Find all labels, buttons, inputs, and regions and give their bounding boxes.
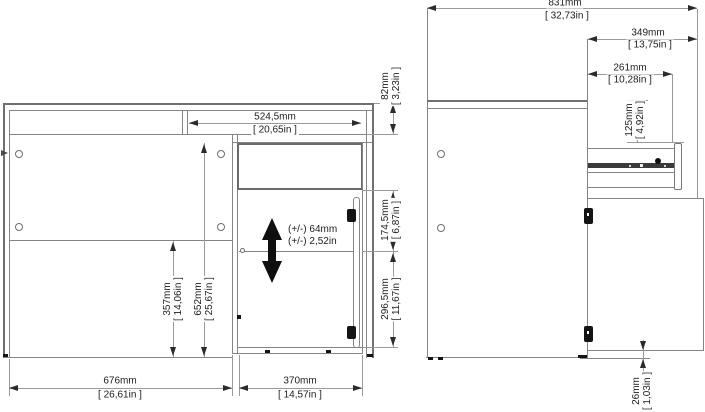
front-desktop-underside bbox=[9, 110, 372, 111]
dim-arrow-icon bbox=[688, 5, 697, 11]
slide-detail-dot bbox=[664, 165, 666, 167]
dim-arrow-icon bbox=[390, 253, 396, 262]
dim-arrow-icon bbox=[201, 144, 207, 153]
dim-label-kneespace-height: 357mm [ 14,06in ] bbox=[162, 276, 184, 322]
door-hinge bbox=[347, 209, 356, 222]
front-pedestal-left-wall-outer bbox=[232, 134, 233, 353]
door-hinge bbox=[347, 326, 356, 339]
dim-label-slide-travel-in: [ 10,28in ] bbox=[606, 75, 654, 86]
dim-arrow-icon bbox=[9, 385, 18, 391]
shelf-adjust-arrow-icon bbox=[262, 218, 282, 240]
dim-label-kneespace-height-in: [ 14,06in ] bbox=[173, 277, 184, 321]
side-drawer-front-panel bbox=[674, 143, 682, 190]
dim-arrow-icon bbox=[223, 385, 232, 391]
dim-label-drawer-width-in: [ 20,65in ] bbox=[251, 125, 299, 136]
side-drawer-top-line bbox=[588, 148, 675, 149]
screw-hole bbox=[217, 150, 225, 158]
side-desktop-underside bbox=[427, 108, 587, 109]
dim-arrow-icon bbox=[390, 241, 396, 250]
screw-hole bbox=[217, 223, 225, 231]
dim-label-total-depth-mm: 831mm bbox=[546, 0, 583, 9]
dim-label-cabinet-width-in: [ 14,57in ] bbox=[276, 390, 324, 401]
shelf-adjust-label-in: (+/-) 2,52in bbox=[288, 236, 337, 247]
side-door-front-face bbox=[703, 198, 704, 350]
slide-stop-knob bbox=[655, 158, 661, 164]
dim-label-kneespace-width-in: [ 26,61in ] bbox=[96, 390, 144, 401]
dim-arrow-icon bbox=[640, 341, 646, 350]
front-pedestal-right-wall bbox=[362, 143, 363, 353]
dim-label-interior-height-in: [ 25,67in ] bbox=[204, 277, 215, 321]
front-right-panel-outer bbox=[372, 103, 374, 358]
front-drawer-front bbox=[237, 143, 363, 190]
dim-label-kneespace-height-mm: 357mm bbox=[162, 277, 173, 321]
slide-detail-dot bbox=[640, 164, 643, 167]
dim-arrow-icon bbox=[390, 337, 396, 346]
side-panel-bottom-line bbox=[426, 357, 588, 358]
foot-glide bbox=[3, 354, 8, 357]
front-door-bottom-line bbox=[237, 347, 363, 348]
dim-arrow-icon bbox=[663, 71, 672, 77]
dim-label-door-lower-in: [ 11,67in ] bbox=[391, 277, 402, 320]
foot-glide bbox=[578, 355, 587, 358]
dim-label-drawer-top-offset: 125mm [ 4,92in ] bbox=[624, 100, 646, 140]
dim-arrow-icon bbox=[390, 124, 396, 133]
edge-reference-arrow-icon bbox=[1, 150, 8, 156]
dim-arrow-icon bbox=[588, 71, 597, 77]
screw-hole bbox=[15, 223, 23, 231]
side-desktop-edge bbox=[427, 100, 587, 102]
dim-label-door-lower-mm: 296,5mm bbox=[380, 277, 391, 320]
side-drawer-bottom-line bbox=[588, 187, 675, 188]
foot-glide bbox=[367, 354, 373, 357]
front-desktop-edge bbox=[3, 103, 374, 105]
dim-label-drawer-extension-mm: 349mm bbox=[629, 28, 666, 39]
dim-label-door-upper-in: [ 6,87in ] bbox=[391, 199, 402, 241]
dim-label-cabinet-width-mm: 370mm bbox=[281, 376, 318, 387]
front-shelf-line bbox=[239, 251, 353, 252]
front-kneespace-bottom-line bbox=[3, 357, 233, 358]
dim-label-interior-height-mm: 652mm bbox=[193, 277, 204, 321]
hinge-pin-dot bbox=[587, 213, 589, 216]
side-slide-lower-line bbox=[588, 172, 675, 173]
dim-label-door-lower: 296,5mm [ 11,67in ] bbox=[380, 276, 402, 321]
dim-label-top-height-mm: 82mm bbox=[380, 67, 391, 105]
door-hinge bbox=[584, 208, 593, 224]
dim-label-interior-height: 652mm [ 25,67in ] bbox=[193, 276, 215, 322]
foot-glide bbox=[428, 357, 433, 360]
front-pedestal-bottom-line bbox=[232, 353, 363, 354]
foot-glide bbox=[326, 350, 331, 353]
dim-label-door-upper: 174,5mm [ 6,87in ] bbox=[380, 198, 402, 242]
dim-arrow-icon bbox=[588, 36, 597, 42]
front-backpanel-bottom-line bbox=[9, 240, 233, 241]
front-apron-divider-b bbox=[187, 111, 188, 134]
dim-arrow-icon bbox=[352, 120, 361, 126]
dim-ext-line bbox=[363, 347, 398, 348]
dim-arrow-icon bbox=[201, 347, 207, 356]
dim-arrow-icon bbox=[353, 385, 362, 391]
dim-arrow-icon bbox=[239, 385, 248, 391]
dim-label-top-height: 82mm [ 3,23in ] bbox=[380, 66, 402, 106]
dim-label-floor-clearance-mm: 26mm bbox=[631, 372, 642, 410]
drawer-slide-rail bbox=[588, 163, 675, 168]
front-apron-divider-a bbox=[182, 111, 183, 134]
shelf-adjust-label-mm: (+/-) 64mm bbox=[288, 224, 337, 235]
dim-ext-line bbox=[672, 74, 673, 143]
side-door-bottom-line bbox=[587, 350, 704, 351]
side-door-top-line bbox=[588, 198, 703, 199]
dim-ext-line bbox=[232, 355, 233, 396]
dim-arrow-icon bbox=[189, 120, 198, 126]
dim-arrow-icon bbox=[688, 36, 697, 42]
dim-line-interior-height bbox=[204, 143, 205, 357]
front-left-panel-outer bbox=[3, 104, 5, 358]
side-back-edge bbox=[427, 9, 428, 357]
slide-detail-dot bbox=[629, 165, 631, 167]
hinge-pin-dot bbox=[587, 331, 589, 334]
dim-label-drawer-width-mm: 524,5mm bbox=[252, 112, 298, 123]
dim-label-slide-travel-mm: 261mm bbox=[611, 63, 648, 74]
dim-ext-line bbox=[367, 134, 398, 135]
shelf-pin-hole bbox=[240, 248, 245, 253]
dim-label-drawer-top-offset-in: [ 4,92in ] bbox=[635, 101, 646, 139]
shelf-adjust-arrow-shaft bbox=[268, 239, 276, 263]
foot-glide bbox=[265, 350, 270, 353]
dim-arrow-icon bbox=[640, 359, 646, 368]
front-right-panel-inner bbox=[366, 110, 367, 358]
screw-hole bbox=[15, 150, 23, 158]
dim-label-total-depth-in: [ 32,73in ] bbox=[543, 11, 591, 22]
dim-label-kneespace-width-mm: 676mm bbox=[101, 376, 138, 387]
front-apron-bottom-line bbox=[9, 134, 367, 135]
dim-ext-line bbox=[362, 355, 363, 396]
door-hinge bbox=[584, 326, 593, 342]
shelf-adjust-arrow-icon bbox=[262, 261, 282, 283]
dim-label-door-upper-mm: 174,5mm bbox=[380, 199, 391, 241]
dim-arrow-icon bbox=[170, 347, 176, 356]
dim-arrow-icon bbox=[170, 242, 176, 251]
dim-label-drawer-extension-in: [ 13,75in ] bbox=[626, 40, 674, 51]
dim-arrow-icon bbox=[427, 5, 436, 11]
shelf-pin bbox=[237, 315, 241, 319]
screw-hole bbox=[437, 224, 445, 232]
dim-label-drawer-top-offset-mm: 125mm bbox=[624, 101, 635, 139]
front-left-panel-inner bbox=[9, 111, 10, 358]
screw-hole bbox=[437, 150, 445, 158]
dim-label-top-height-in: [ 3,23in ] bbox=[391, 67, 402, 105]
foot-glide bbox=[438, 357, 443, 360]
technical-drawing-canvas: 524,5mm [ 20,65in ] 82mm [ 3,23in ] 174,… bbox=[0, 0, 705, 412]
dim-label-floor-clearance: 26mm [ 1,03in ] bbox=[631, 371, 653, 411]
dim-ext-line bbox=[697, 9, 698, 198]
dim-label-floor-clearance-in: [ 1,03in ] bbox=[642, 372, 653, 410]
